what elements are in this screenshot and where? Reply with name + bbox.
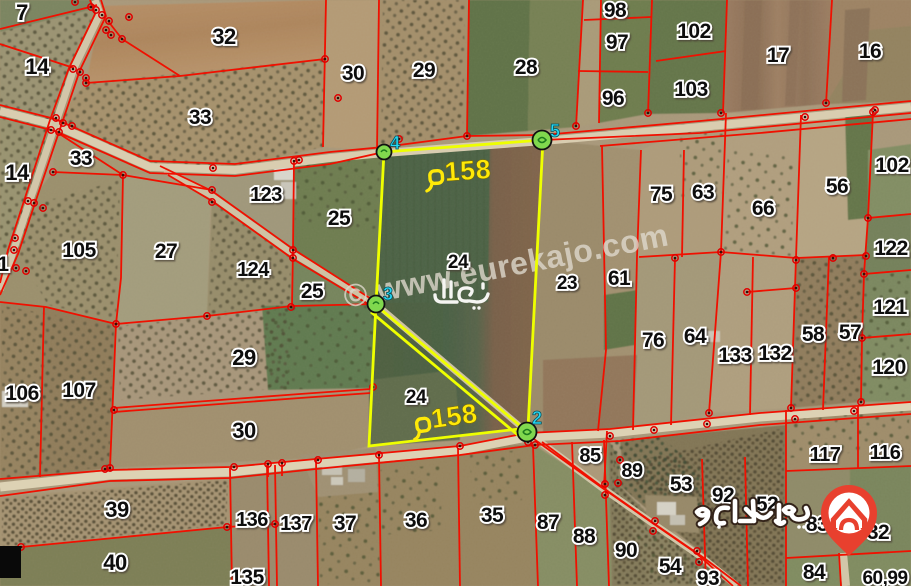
svg-text:53: 53 bbox=[670, 473, 692, 496]
svg-text:97: 97 bbox=[606, 31, 628, 54]
svg-text:102: 102 bbox=[875, 154, 909, 177]
svg-text:116: 116 bbox=[870, 442, 901, 464]
svg-text:158: 158 bbox=[444, 154, 493, 187]
svg-text:136: 136 bbox=[236, 509, 268, 531]
svg-text:24: 24 bbox=[448, 252, 469, 273]
svg-text:124: 124 bbox=[237, 259, 270, 281]
svg-text:14: 14 bbox=[25, 54, 50, 79]
svg-text:102: 102 bbox=[677, 20, 711, 43]
svg-text:84: 84 bbox=[803, 561, 826, 584]
svg-text:39: 39 bbox=[105, 497, 129, 522]
svg-text:7: 7 bbox=[16, 0, 28, 25]
svg-text:2: 2 bbox=[532, 408, 542, 428]
svg-text:85: 85 bbox=[579, 445, 601, 467]
svg-text:60,99: 60,99 bbox=[862, 568, 907, 586]
svg-text:75: 75 bbox=[650, 183, 673, 206]
svg-text:28: 28 bbox=[515, 56, 538, 79]
svg-text:61: 61 bbox=[608, 267, 631, 290]
svg-text:24: 24 bbox=[406, 387, 427, 408]
svg-text:133: 133 bbox=[718, 344, 752, 367]
svg-text:106: 106 bbox=[5, 382, 39, 405]
svg-text:105: 105 bbox=[62, 239, 96, 262]
svg-text:56: 56 bbox=[826, 175, 848, 198]
svg-text:107: 107 bbox=[62, 379, 96, 402]
svg-text:103: 103 bbox=[674, 78, 708, 101]
svg-text:25: 25 bbox=[301, 280, 324, 303]
svg-text:35: 35 bbox=[481, 504, 504, 527]
svg-text:1: 1 bbox=[0, 253, 9, 276]
svg-text:123: 123 bbox=[250, 184, 282, 206]
svg-text:33: 33 bbox=[189, 106, 211, 129]
svg-text:120: 120 bbox=[872, 356, 906, 379]
svg-text:90: 90 bbox=[615, 539, 637, 562]
svg-text:5: 5 bbox=[550, 121, 560, 141]
svg-text:66: 66 bbox=[752, 197, 774, 220]
svg-text:88: 88 bbox=[573, 525, 596, 548]
svg-text:57: 57 bbox=[839, 321, 861, 344]
svg-text:30: 30 bbox=[232, 418, 256, 443]
svg-text:76: 76 bbox=[642, 329, 664, 352]
svg-text:135: 135 bbox=[230, 566, 264, 586]
svg-text:33: 33 bbox=[70, 147, 92, 170]
svg-text:32: 32 bbox=[212, 24, 236, 49]
svg-text:23: 23 bbox=[557, 273, 577, 294]
svg-text:121: 121 bbox=[873, 296, 907, 319]
svg-text:25: 25 bbox=[328, 207, 351, 230]
svg-text:93: 93 bbox=[697, 567, 719, 586]
svg-text:27: 27 bbox=[155, 240, 177, 263]
svg-text:29: 29 bbox=[413, 59, 435, 82]
svg-text:14: 14 bbox=[5, 160, 30, 185]
svg-text:4: 4 bbox=[390, 133, 400, 153]
svg-text:89: 89 bbox=[621, 460, 643, 482]
svg-text:96: 96 bbox=[602, 87, 624, 110]
svg-text:17: 17 bbox=[767, 44, 789, 67]
svg-text:58: 58 bbox=[802, 323, 825, 346]
svg-text:98: 98 bbox=[604, 0, 627, 22]
svg-text:87: 87 bbox=[537, 511, 559, 534]
svg-text:40: 40 bbox=[103, 550, 127, 575]
svg-text:64: 64 bbox=[684, 325, 707, 348]
svg-text:36: 36 bbox=[405, 509, 427, 532]
svg-text:122: 122 bbox=[874, 237, 908, 260]
svg-text:16: 16 bbox=[859, 40, 881, 63]
svg-text:30: 30 bbox=[342, 62, 364, 85]
svg-text:132: 132 bbox=[758, 342, 792, 365]
svg-text:3: 3 bbox=[383, 284, 393, 304]
svg-text:63: 63 bbox=[692, 181, 714, 204]
svg-text:37: 37 bbox=[334, 512, 356, 535]
svg-text:158: 158 bbox=[429, 398, 479, 434]
svg-text:137: 137 bbox=[280, 513, 312, 535]
svg-text:54: 54 bbox=[659, 555, 682, 578]
svg-text:117: 117 bbox=[810, 444, 841, 466]
svg-text:29: 29 bbox=[232, 345, 256, 370]
